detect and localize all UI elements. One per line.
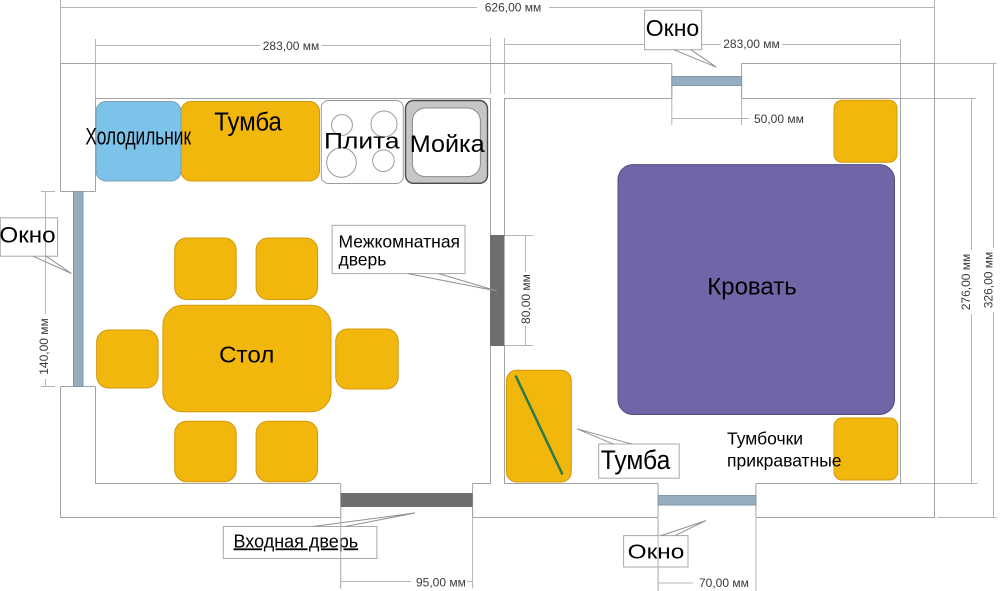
svg-text:Тумбочки: Тумбочки: [727, 429, 803, 449]
svg-text:626,00 мм: 626,00 мм: [485, 1, 542, 15]
svg-text:Окно: Окно: [0, 223, 56, 248]
svg-text:283,00 мм: 283,00 мм: [723, 37, 780, 51]
svg-text:326,00 мм: 326,00 мм: [982, 252, 996, 309]
svg-text:Окно: Окно: [646, 15, 699, 41]
svg-text:Кровать: Кровать: [707, 274, 796, 301]
svg-text:Межкомнатная: Межкомнатная: [339, 231, 461, 251]
svg-text:Тумба: Тумба: [214, 108, 282, 137]
svg-text:дверь: дверь: [339, 249, 387, 269]
svg-text:Входная дверь: Входная дверь: [234, 531, 359, 551]
svg-text:80,00 мм: 80,00 мм: [519, 274, 533, 324]
svg-text:140,00 мм: 140,00 мм: [37, 318, 51, 375]
svg-text:Тумба: Тумба: [601, 446, 671, 475]
svg-text:70,00 мм: 70,00 мм: [699, 576, 749, 590]
svg-text:95,00 мм: 95,00 мм: [416, 576, 466, 590]
svg-text:Окно: Окно: [628, 541, 685, 563]
svg-text:50,00 мм: 50,00 мм: [754, 112, 804, 126]
svg-text:прикраватные: прикраватные: [727, 451, 842, 471]
svg-text:283,00 мм: 283,00 мм: [263, 39, 320, 53]
svg-text:Плита: Плита: [324, 130, 400, 154]
svg-text:Мойка: Мойка: [410, 132, 485, 158]
svg-text:Холодильник: Холодильник: [85, 124, 191, 150]
svg-text:276,00 мм: 276,00 мм: [959, 254, 973, 311]
svg-text:Стол: Стол: [219, 342, 274, 367]
